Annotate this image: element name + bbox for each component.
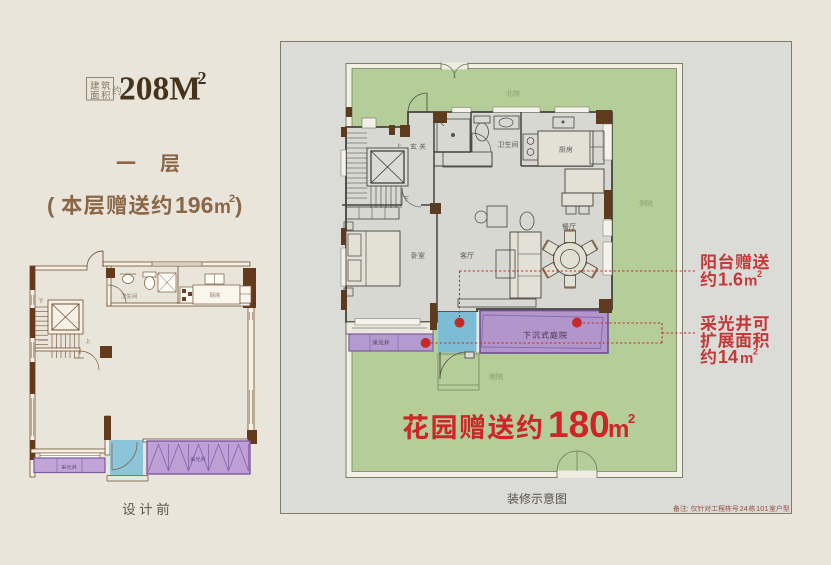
- svg-text:2: 2: [757, 269, 762, 279]
- svg-text:m: m: [740, 350, 753, 367]
- svg-text:): ): [235, 193, 242, 218]
- svg-text:196: 196: [175, 192, 213, 218]
- svg-text:101: 101: [756, 504, 769, 513]
- svg-text:m: m: [744, 273, 757, 290]
- svg-text:2: 2: [753, 347, 758, 357]
- svg-text:1.6: 1.6: [718, 270, 743, 290]
- svg-text:2: 2: [198, 68, 207, 88]
- svg-text:m: m: [608, 416, 629, 443]
- svg-text:24: 24: [740, 504, 748, 513]
- svg-text:2: 2: [628, 411, 635, 426]
- svg-text:208M: 208M: [119, 71, 201, 108]
- svg-text:180: 180: [548, 404, 610, 445]
- svg-text:14: 14: [718, 347, 738, 367]
- svg-text::: :: [687, 506, 689, 513]
- svg-text:(: (: [47, 193, 55, 218]
